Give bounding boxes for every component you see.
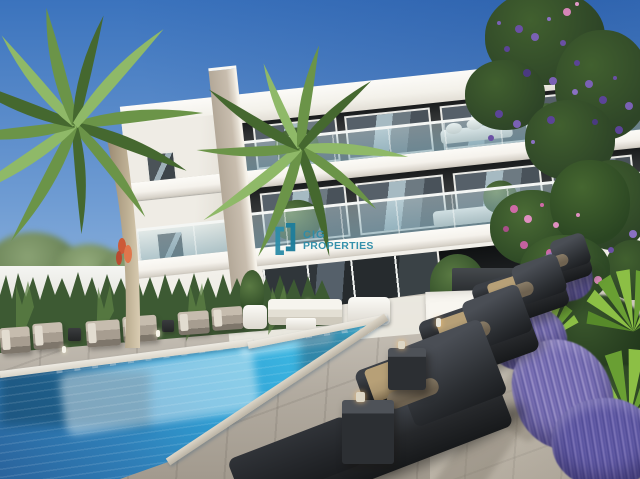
side-table — [162, 320, 174, 332]
brand-name: CIG — [303, 230, 374, 240]
bollard-light — [62, 346, 66, 353]
purple-blossoms — [495, 110, 503, 118]
pink-blossoms — [510, 205, 518, 213]
apartment-complex-render: CIG PROPERTIES — [0, 0, 640, 479]
sun-lounger-pair — [177, 301, 247, 340]
candle — [398, 341, 405, 349]
terrace-armchair — [243, 305, 267, 329]
bollard-light — [156, 330, 160, 337]
candle — [356, 392, 365, 402]
cube-side-table — [342, 400, 394, 464]
watermark-text: CIG PROPERTIES — [303, 230, 374, 252]
purple-blossoms — [515, 25, 523, 33]
cube-side-table — [388, 348, 426, 390]
watermark-logo: CIG PROPERTIES — [266, 221, 374, 257]
brand-word: PROPERTIES — [303, 240, 374, 252]
purple-blossoms — [585, 80, 593, 88]
pink-blossom — [563, 8, 571, 16]
side-table — [68, 328, 81, 341]
sun-lounger-pair — [0, 316, 67, 359]
twin-buildings-icon — [266, 221, 300, 257]
drink-glass — [436, 318, 441, 327]
